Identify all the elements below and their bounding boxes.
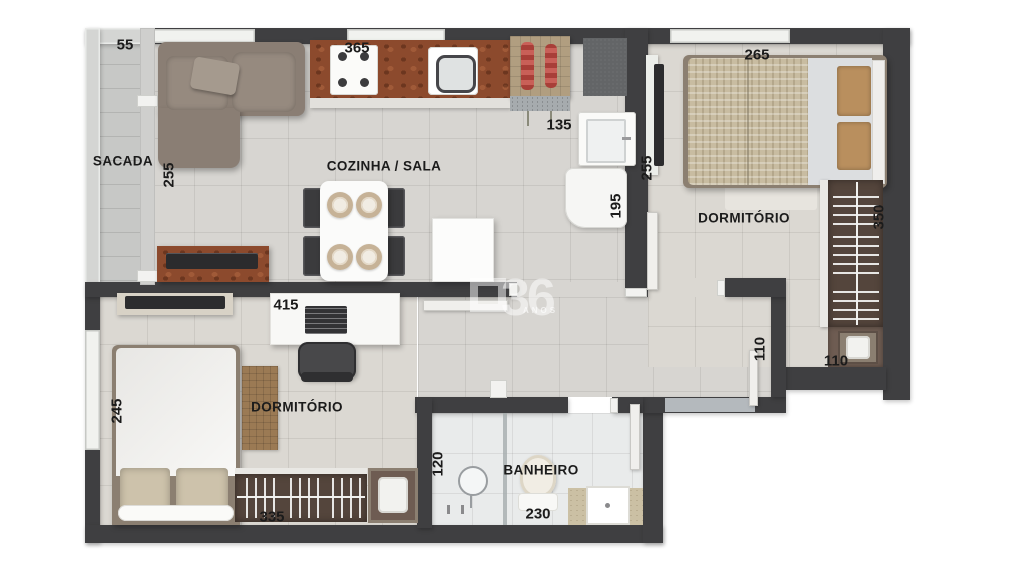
dim-kitchen-run: 365 [344, 41, 369, 56]
plate-icon [356, 192, 382, 218]
dim-sacada-width: 55 [117, 38, 134, 53]
wall-cap [625, 288, 647, 297]
skewer-icon [521, 42, 534, 90]
dim-closet-nook: 110 [824, 354, 848, 369]
dim-wardrobe-run: 335 [259, 510, 284, 525]
burner-icon [338, 78, 347, 87]
refrigerator [432, 218, 494, 282]
hamper-inner [846, 336, 870, 359]
bed1-foot-runner [725, 185, 817, 210]
bed1-duvet-seam [747, 58, 749, 185]
dim-entry-door: 110 [753, 337, 768, 361]
bedroom1-south-wall [725, 278, 786, 297]
vanity-faucet-icon [605, 503, 610, 508]
tank-faucet-icon [622, 137, 631, 140]
bedroom1-door-leaf [647, 212, 658, 290]
closet-edge [820, 180, 828, 327]
grill-granite-base [510, 96, 570, 111]
door-frame [717, 280, 725, 296]
room-label-sacada: SACADA [93, 154, 153, 168]
dining-chair [386, 188, 405, 228]
plate-icon [327, 244, 353, 270]
watermark-number: 36 [501, 268, 553, 328]
wardrobe-hangers-icon [290, 478, 324, 518]
dim-closet-run: 350 [872, 204, 887, 229]
shower-stem [470, 494, 472, 508]
dim-service-depth: 195 [609, 193, 624, 218]
bedroom2-window [85, 330, 100, 450]
room-label-dormitorio2: DORMITÓRIO [251, 400, 343, 414]
office-chair-back [301, 372, 353, 382]
sink-basin [436, 55, 476, 93]
bedroom1-door-floor [648, 278, 725, 297]
dim-dorm2-depth: 245 [110, 398, 125, 423]
tv-icon [125, 296, 225, 309]
dim-sala-side: 255 [162, 162, 177, 187]
bathroom-top-wall [415, 397, 568, 413]
tv-icon [654, 64, 664, 166]
bathroom-door-leaf [630, 404, 640, 470]
tv-icon [166, 253, 258, 269]
bed1-cushion [837, 122, 871, 170]
laundry-basin [586, 119, 626, 163]
mirror-inner [378, 477, 408, 513]
room-label-cozinha-sala: COZINHA / SALA [327, 159, 442, 173]
dim-service-width: 135 [546, 118, 571, 133]
barbecue-grill [510, 36, 570, 98]
dim-desk-wall: 415 [273, 298, 298, 313]
sala-window [150, 29, 255, 43]
bathroom-right-wall [643, 398, 663, 543]
bedroom1-window [670, 29, 790, 43]
dim-dorm1-width: 265 [744, 48, 769, 63]
floor-plan: 36 ANOS 55 SACADA 255 365 COZINHA / SALA… [0, 0, 1024, 575]
closet-hangers-icon [833, 236, 879, 274]
closet-hangers-icon [833, 284, 879, 320]
sofa-cushion [232, 52, 296, 112]
bottom-wall [85, 525, 663, 543]
cabinet-edge [310, 98, 510, 108]
sofa-chaise [158, 108, 240, 168]
entry-threshold [665, 398, 755, 412]
room-label-dormitorio1: DORMITÓRIO [698, 211, 790, 225]
shower-tap-icon [447, 505, 450, 514]
watermark-caption: ANOS [523, 306, 558, 315]
bed2-bolster [118, 505, 234, 521]
shower-head-icon [458, 466, 488, 496]
room-label-banheiro: BANHEIRO [503, 463, 578, 477]
bed2-duvet [116, 348, 236, 476]
plate-icon [356, 244, 382, 270]
plate-icon [327, 192, 353, 218]
dim-banheiro-width: 230 [525, 507, 550, 522]
window-frame [137, 270, 158, 282]
closet-bottom-wall [786, 367, 886, 390]
dining-chair [386, 236, 405, 276]
corridor-wall [771, 297, 786, 397]
bed1-cushion [837, 66, 871, 116]
dim-dorm1-side: 255 [640, 155, 655, 180]
laptop-icon [305, 306, 347, 334]
burner-icon [360, 78, 369, 87]
bed1-headboard [872, 60, 885, 184]
service-mat [583, 38, 627, 96]
window-frame [137, 95, 158, 107]
skewer-icon [545, 44, 557, 88]
wardrobe-hangers-icon [332, 478, 362, 518]
door-frame [490, 380, 507, 398]
door-frame [610, 398, 618, 413]
shower-tap-icon [461, 505, 464, 514]
dim-shower-width: 120 [431, 451, 446, 476]
